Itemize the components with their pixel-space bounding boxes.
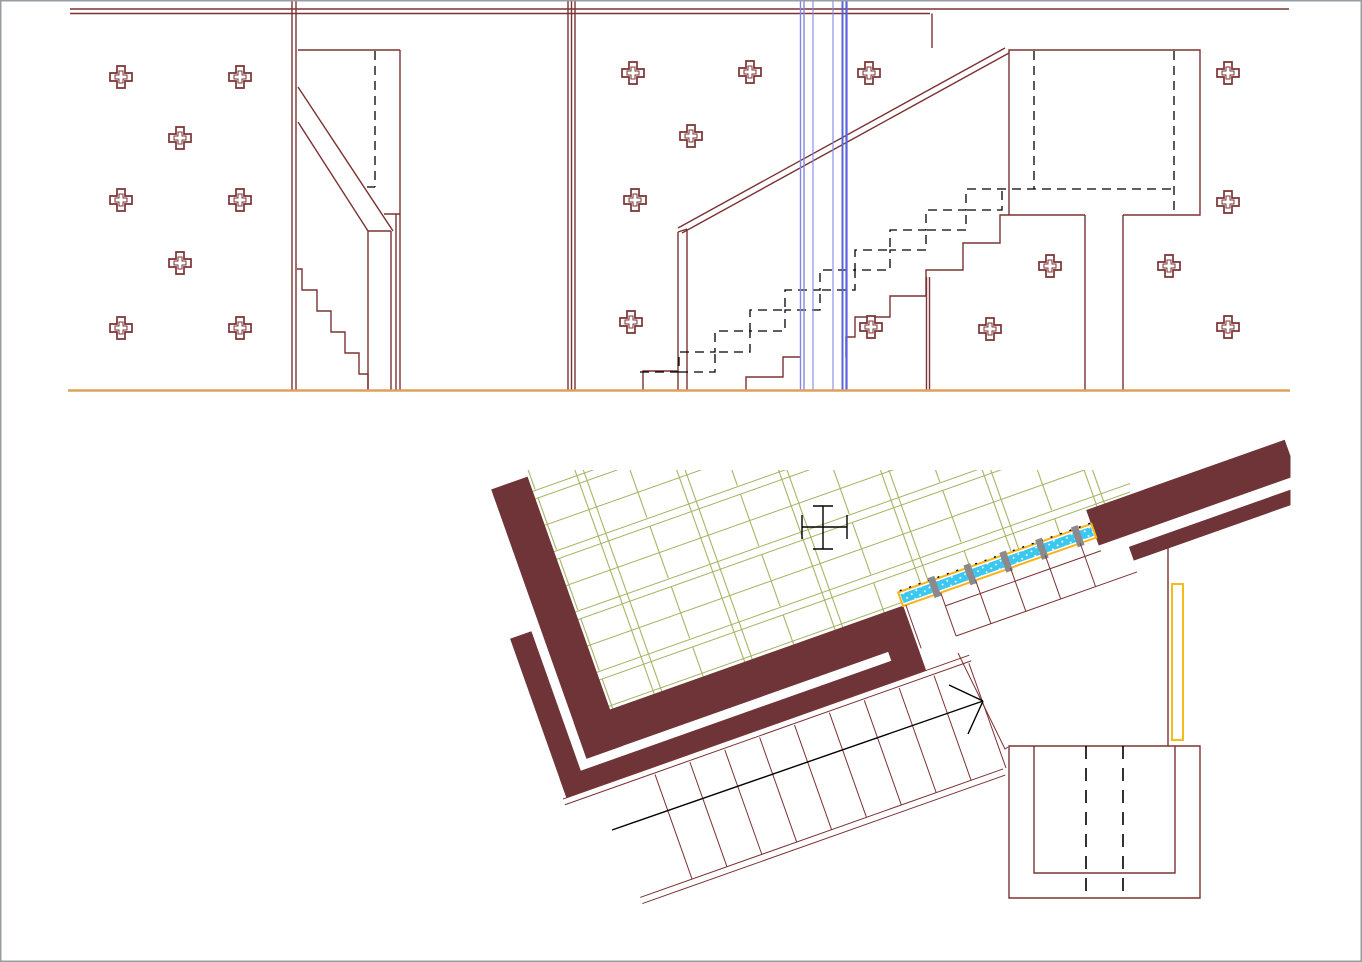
landing-slab [1009, 50, 1200, 391]
tread-line [976, 580, 991, 623]
tread-line [941, 593, 956, 636]
wall-anchor-cross-icon [680, 125, 702, 147]
wall-anchor-cross-icon [229, 317, 251, 339]
stair-steps [297, 269, 368, 391]
tread-line [969, 663, 1006, 768]
stair-railing [298, 87, 393, 231]
elevation-panel-left [292, 0, 400, 391]
footing-inner [1034, 746, 1175, 873]
tread-line [1010, 568, 1025, 611]
open-door-leaf [1172, 584, 1183, 740]
drawing-canvas[interactable] [0, 0, 1362, 962]
wall-anchor-cross-icon [110, 66, 132, 88]
cad-viewport[interactable] [0, 0, 1362, 962]
wall-line-triple [568, 0, 575, 391]
wall-anchor-cross-icon [110, 317, 132, 339]
wall-anchor-cross-icon [169, 252, 191, 274]
flight-bottom-edges [640, 769, 1005, 904]
hidden-stair-soffit-profile [679, 189, 1002, 372]
wall-anchor-cross-icon [979, 318, 1001, 340]
tread-line [829, 713, 866, 818]
wall-anchor-cross-icon [1217, 191, 1239, 213]
wall-anchor-cross-icon [624, 189, 646, 211]
tread-line [1080, 543, 1095, 586]
tread-line [795, 725, 832, 830]
tread-line [760, 737, 797, 842]
tread-line [725, 750, 762, 855]
wall-anchor-cross-icon [1217, 316, 1239, 338]
wall-anchors [110, 61, 1239, 340]
stringer-post [927, 277, 930, 391]
tread-line [864, 700, 901, 805]
wall-anchor-cross-icon [229, 66, 251, 88]
hidden-landing-dashed [1034, 51, 1174, 215]
column-footing [1009, 746, 1200, 898]
wall-anchor-cross-icon [1217, 62, 1239, 84]
wall-anchor-cross-icon [110, 189, 132, 211]
newel-post [368, 231, 391, 391]
glazing-mullions [801, 0, 847, 390]
wall-line [292, 0, 296, 391]
elevation-panel-right [1009, 50, 1200, 391]
tread-line [690, 762, 727, 867]
wall-anchor-cross-icon [739, 61, 761, 83]
tread-line [934, 676, 971, 781]
footing-hidden-dashed [1086, 746, 1123, 898]
wall-anchor-cross-icon [1039, 255, 1061, 277]
wall-anchor-cross-icon [1158, 255, 1180, 277]
wall-anchor-cross-icon [229, 189, 251, 211]
wall-anchor-cross-icon [858, 62, 880, 84]
wall-anchor-cross-icon [860, 316, 882, 338]
wall-anchor-cross-icon [622, 62, 644, 84]
tread-line [655, 774, 692, 879]
drawing-crop [1291, 420, 1361, 580]
wall-anchor-cross-icon [620, 311, 642, 333]
tread-line [899, 688, 936, 793]
footing-outer [1009, 746, 1200, 898]
ceiling-lines [70, 9, 1289, 48]
wall-anchor-cross-icon [169, 127, 191, 149]
newel-post [678, 229, 687, 391]
first-step [643, 371, 678, 391]
tread-line [1045, 556, 1060, 599]
elevation-views [68, 0, 1290, 391]
hidden-edge-dashed [367, 51, 375, 187]
hidden-stair-top-profile [640, 189, 1174, 372]
landing-outline [298, 50, 400, 391]
